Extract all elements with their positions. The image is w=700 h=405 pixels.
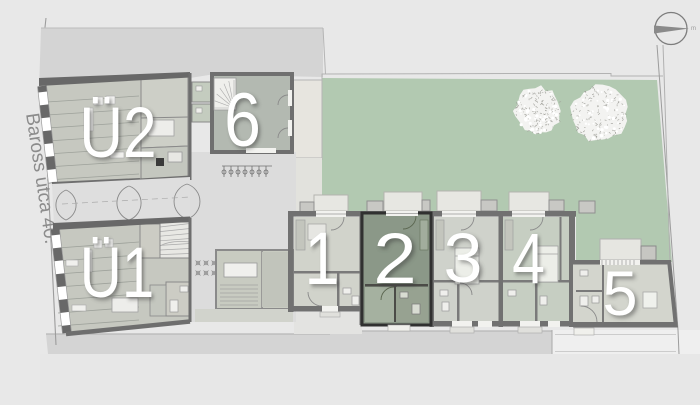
svg-text:5: 5 <box>602 259 637 329</box>
svg-text:Ü1: Ü1 <box>80 232 154 312</box>
svg-text:2: 2 <box>373 218 416 298</box>
svg-text:1: 1 <box>305 217 340 300</box>
svg-text:6: 6 <box>224 79 261 163</box>
svg-text:Ü2: Ü2 <box>79 92 156 172</box>
svg-text:3: 3 <box>444 219 483 297</box>
svg-text:4: 4 <box>512 219 545 298</box>
svg-text:m: m <box>691 26 696 32</box>
